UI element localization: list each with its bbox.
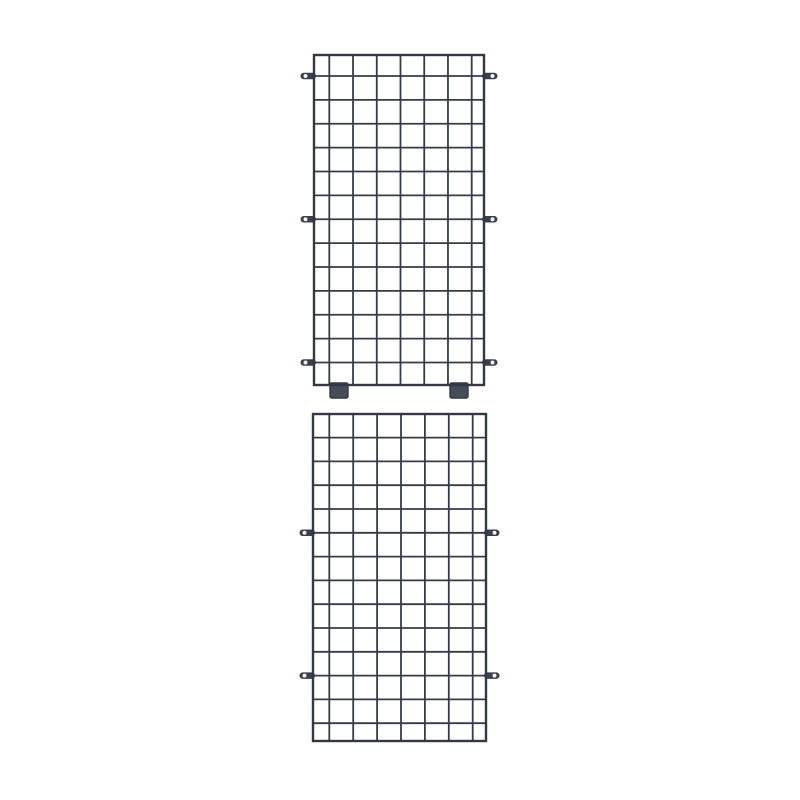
tab-hole [491,74,495,78]
tab-hole [304,217,308,221]
tab-hole [491,361,495,365]
wire-grid-panel-bottom [293,410,506,757]
tab-hole [304,74,308,78]
tab-hole [493,674,497,678]
panel-frame [313,414,486,741]
tab-hole [493,531,497,535]
tab-hole [304,361,308,365]
wire-grid-panel-top [294,51,504,401]
tab-hole [303,531,307,535]
tab-hole [491,217,495,221]
tab-hole [303,674,307,678]
product-photo [0,0,800,800]
